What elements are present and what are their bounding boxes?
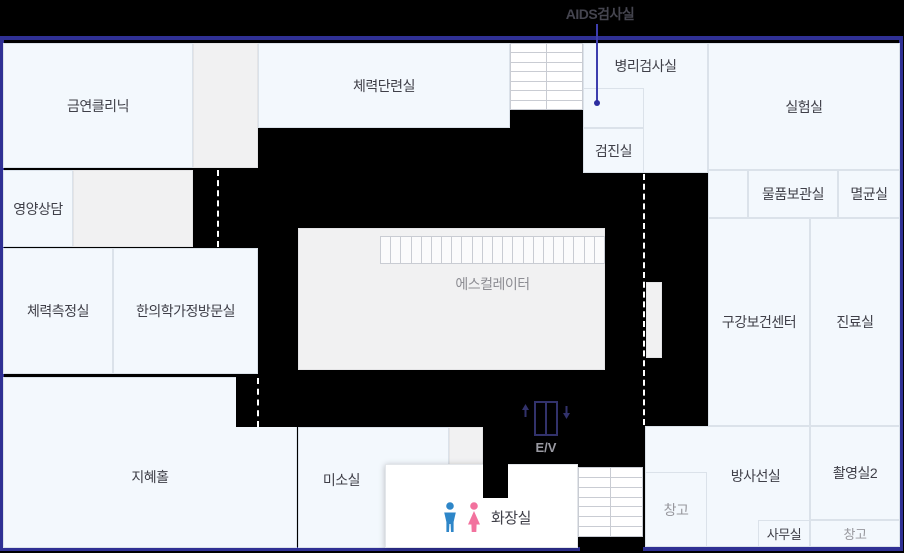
room-label: 창고 xyxy=(664,500,689,520)
room-label: 물품보관실 xyxy=(762,184,824,204)
room-label: 창고 xyxy=(844,524,867,543)
room-oriental-medicine-room: 한의학가정방문실 xyxy=(113,248,258,374)
stairs-bottom xyxy=(578,467,643,537)
room-label: 방사선실 xyxy=(731,466,781,486)
dash-bottom-corridor xyxy=(257,378,259,427)
room-white-strip xyxy=(646,282,662,358)
room-laboratory: 실험실 xyxy=(708,43,900,170)
aids-room-callout-label: AIDS검사실 xyxy=(520,4,680,24)
room-sterilization-room: 멸균실 xyxy=(838,170,900,218)
room-warehouse-right: 창고 xyxy=(810,520,900,547)
room-label: 검진실 xyxy=(595,141,632,161)
room-gray-room-top xyxy=(193,43,258,168)
room-gray-room-left xyxy=(73,170,193,247)
room-fitness-test-room: 체력측정실 xyxy=(3,248,113,374)
room-nutrition-counseling: 영양상담 xyxy=(3,170,73,247)
dash-right-corridor xyxy=(643,174,645,425)
corridor-finger-restroom xyxy=(483,427,508,498)
male-restroom-icon xyxy=(443,502,457,533)
room-label: 사무실 xyxy=(767,524,801,543)
escalator-strip xyxy=(380,236,605,264)
room-label: 병리검사실 xyxy=(615,56,677,76)
dash-left-corridor xyxy=(217,170,219,247)
room-fitness-training-room: 체력단련실 xyxy=(258,43,510,128)
room-checkup-room: 검진실 xyxy=(583,128,644,173)
room-label: 멸균실 xyxy=(850,184,887,204)
room-blank-cell xyxy=(708,170,748,218)
room-gray-room-small xyxy=(449,427,483,466)
room-treatment-room: 진료실 xyxy=(810,218,900,426)
restroom-sign: 화장실 xyxy=(443,502,531,533)
female-restroom-icon xyxy=(467,502,481,533)
room-aids-test-room xyxy=(583,88,644,128)
room-imaging-room-2: 촬영실2 xyxy=(810,426,900,520)
room-label: 한의학가정방문실 xyxy=(136,301,235,321)
room-label: 체력단련실 xyxy=(353,76,415,96)
elevator-icon xyxy=(520,400,572,438)
room-oral-health-center: 구강보건센터 xyxy=(708,218,810,426)
floor-plan: 금연클리닉체력단련실병리검사실검진실실험실물품보관실멸균실영양상담체력측정실한의… xyxy=(0,0,904,553)
escalator-label: 에스컬레이터 xyxy=(380,274,605,294)
room-geumyeon-clinic: 금연클리닉 xyxy=(3,43,193,168)
room-label: 구강보건센터 xyxy=(722,312,796,332)
room-label: 미소실 xyxy=(323,470,360,490)
aids-room-callout-line xyxy=(596,24,598,103)
aids-room-callout-dot xyxy=(594,100,600,106)
room-warehouse-left: 창고 xyxy=(645,472,707,547)
room-label: 촬영실2 xyxy=(833,463,877,483)
room-office: 사무실 xyxy=(758,520,810,547)
room-label: 지혜홀 xyxy=(131,467,168,487)
stairs-top xyxy=(510,43,583,110)
room-label: 체력측정실 xyxy=(27,301,89,321)
room-label: 실험실 xyxy=(785,97,822,117)
room-label: 영양상담 xyxy=(13,199,63,219)
restroom-label: 화장실 xyxy=(491,507,531,528)
elevator-label: E/V xyxy=(520,440,572,455)
room-label: 진료실 xyxy=(836,312,873,332)
border-gap-bottom xyxy=(580,537,643,553)
room-supply-storage-room: 물품보관실 xyxy=(748,170,838,218)
room-label: 금연클리닉 xyxy=(67,96,129,116)
corridor-notch-wisdom-hall xyxy=(236,377,297,427)
